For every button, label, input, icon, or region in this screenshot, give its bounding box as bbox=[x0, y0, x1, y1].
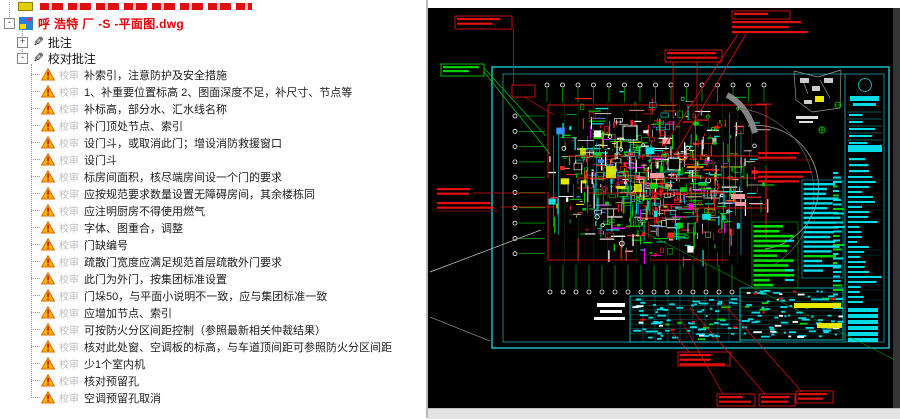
review-item-text: 设门斗，或取消此门；增设消防救援窗口 bbox=[84, 135, 282, 151]
review-item-list: 校审 补索引，注意防护及安全措施 校审 1、补重要位置标高 2、图面深度不足，补… bbox=[0, 66, 392, 406]
tree-connector bbox=[31, 193, 40, 194]
review-item-row[interactable]: 校审 少1个室内机 bbox=[0, 355, 392, 372]
warning-icon bbox=[41, 221, 55, 234]
tree-connector bbox=[31, 108, 40, 109]
review-item-text: 门垛50，与平面小说明不一致，应与集团标准一致 bbox=[84, 288, 327, 304]
review-item-prefix: 校审 bbox=[59, 237, 79, 252]
tree-connector bbox=[31, 261, 40, 262]
tree-connector bbox=[31, 380, 40, 381]
review-item-row[interactable]: 校审 可按防火分区间距控制（参照最新相关仲裁结果） bbox=[0, 321, 392, 338]
tree-connector bbox=[31, 176, 40, 177]
tree-connector bbox=[31, 244, 40, 245]
review-item-prefix: 校审 bbox=[59, 203, 79, 218]
review-item-row[interactable]: 校审 门垛50，与平面小说明不一致，应与集团标准一致 bbox=[0, 287, 392, 304]
review-item-prefix: 校审 bbox=[59, 305, 79, 320]
tree-connector bbox=[31, 397, 40, 398]
review-item-text: 疏散门宽度应满足规范首层疏散外门要求 bbox=[84, 254, 282, 270]
annotations-node-label: 批注 bbox=[48, 34, 72, 51]
warning-icon bbox=[41, 136, 55, 149]
tree-connector bbox=[31, 210, 40, 211]
review-item-text: 字体、图重合，调整 bbox=[84, 220, 183, 236]
review-item-prefix: 校审 bbox=[59, 152, 79, 167]
review-item-prefix: 校审 bbox=[59, 322, 79, 337]
warning-icon bbox=[41, 357, 55, 370]
review-item-text: 应按规范要求数量设置无障碍房间，其余楼栋同 bbox=[84, 186, 315, 202]
review-item-row[interactable]: 校审 核对此处窗、空调板的标高，与车道顶间距可参照防火分区间距 bbox=[0, 338, 392, 355]
warning-icon bbox=[41, 102, 55, 115]
warning-icon bbox=[41, 323, 55, 336]
review-item-row[interactable]: 校审 标房间面积，核尽端房间设一个门的要求 bbox=[0, 168, 392, 185]
review-annotations-node[interactable]: - ✎ 校对批注 bbox=[17, 50, 96, 66]
review-item-row[interactable]: 校审 空调预留孔取消 bbox=[0, 389, 392, 406]
review-item-text: 标房间面积，核尽端房间设一个门的要求 bbox=[84, 169, 282, 185]
review-item-text: 可按防火分区间距控制（参照最新相关仲裁结果） bbox=[84, 322, 326, 338]
review-item-row[interactable]: 校审 门缺编号 bbox=[0, 236, 392, 253]
tree-connector bbox=[31, 227, 40, 228]
dwg-file-icon bbox=[19, 17, 33, 30]
review-item-text: 补门顶处节点、索引 bbox=[84, 118, 183, 134]
collapse-toggle[interactable]: - bbox=[17, 53, 28, 64]
review-item-row[interactable]: 校审 设门斗，或取消此门；增设消防救援窗口 bbox=[0, 134, 392, 151]
review-item-row[interactable]: 校审 此门为外门，按集团标准设置 bbox=[0, 270, 392, 287]
pencil-icon: ✎ bbox=[33, 50, 44, 66]
review-item-prefix: 校审 bbox=[59, 135, 79, 150]
file-icon bbox=[18, 2, 33, 11]
review-item-row[interactable]: 校审 1、补重要位置标高 2、图面深度不足，补尺寸、节点等 bbox=[0, 83, 392, 100]
tree-connector bbox=[31, 74, 40, 75]
review-item-row[interactable]: 校审 设门斗 bbox=[0, 151, 392, 168]
review-item-row[interactable]: 校审 字体、图重合，调整 bbox=[0, 219, 392, 236]
annotation-tree-panel: - 呼 浩特 厂 -S -平面图.dwg + ✎ 批注 - ✎ 校对批注 校审 … bbox=[0, 0, 426, 418]
review-item-prefix: 校审 bbox=[59, 288, 79, 303]
review-item-text: 门缺编号 bbox=[84, 237, 128, 253]
warning-icon bbox=[41, 391, 55, 404]
tree-connector bbox=[31, 346, 40, 347]
review-item-row[interactable]: 校审 应注明厨房不得使用燃气 bbox=[0, 202, 392, 219]
review-item-text: 核对预留孔 bbox=[84, 373, 139, 389]
review-item-prefix: 校审 bbox=[59, 339, 79, 354]
review-item-prefix: 校审 bbox=[59, 271, 79, 286]
warning-icon bbox=[41, 68, 55, 81]
tree-connector bbox=[31, 91, 40, 92]
warning-icon bbox=[41, 187, 55, 200]
review-item-prefix: 校审 bbox=[59, 67, 79, 82]
warning-icon bbox=[41, 119, 55, 132]
annotations-node[interactable]: + ✎ 批注 bbox=[17, 34, 72, 50]
review-item-row[interactable]: 校审 疏散门宽度应满足规范首层疏散外门要求 bbox=[0, 253, 392, 270]
tree-connector bbox=[31, 329, 40, 330]
collapse-toggle[interactable]: - bbox=[4, 18, 15, 29]
review-node-label: 校对批注 bbox=[48, 50, 96, 67]
warning-icon bbox=[41, 153, 55, 166]
review-item-text: 设门斗 bbox=[84, 152, 117, 168]
review-item-prefix: 校审 bbox=[59, 186, 79, 201]
review-item-prefix: 校审 bbox=[59, 390, 79, 405]
warning-icon bbox=[41, 340, 55, 353]
tree-connector bbox=[31, 295, 40, 296]
review-item-row[interactable]: 校审 补标高，部分水、汇水线名称 bbox=[0, 100, 392, 117]
review-item-text: 补标高，部分水、汇水线名称 bbox=[84, 101, 227, 117]
review-item-prefix: 校审 bbox=[59, 118, 79, 133]
tree-connector bbox=[31, 142, 40, 143]
drawing-file-name: 呼 浩特 厂 -S -平面图.dwg bbox=[38, 15, 184, 32]
review-item-row[interactable]: 校审 核对预留孔 bbox=[0, 372, 392, 389]
review-item-text: 核对此处窗、空调板的标高，与车道顶间距可参照防火分区间距 bbox=[84, 339, 392, 355]
window-bottom-edge bbox=[428, 408, 900, 419]
warning-icon bbox=[41, 374, 55, 387]
review-item-text: 应增加节点、索引 bbox=[84, 305, 172, 321]
drawing-file-row[interactable]: - 呼 浩特 厂 -S -平面图.dwg bbox=[4, 15, 184, 32]
review-item-text: 空调预留孔取消 bbox=[84, 390, 161, 406]
review-item-text: 少1个室内机 bbox=[84, 356, 145, 372]
review-item-text: 应注明厨房不得使用燃气 bbox=[84, 203, 205, 219]
review-item-text: 此门为外门，按集团标准设置 bbox=[84, 271, 227, 287]
expand-toggle[interactable]: + bbox=[17, 37, 28, 48]
review-item-prefix: 校审 bbox=[59, 373, 79, 388]
warning-icon bbox=[41, 170, 55, 183]
cad-canvas[interactable] bbox=[428, 8, 900, 418]
warning-icon bbox=[41, 289, 55, 302]
review-item-text: 补索引，注意防护及安全措施 bbox=[84, 67, 227, 83]
pencil-icon: ✎ bbox=[33, 34, 44, 50]
warning-icon bbox=[41, 204, 55, 217]
tree-connector bbox=[31, 125, 40, 126]
tree-connector bbox=[31, 278, 40, 279]
review-item-prefix: 校审 bbox=[59, 101, 79, 116]
cad-viewport[interactable] bbox=[428, 8, 900, 418]
review-item-prefix: 校审 bbox=[59, 220, 79, 235]
truncated-file-row[interactable] bbox=[0, 1, 252, 11]
review-item-row[interactable]: 校审 应按规范要求数量设置无障碍房间，其余楼栋同 bbox=[0, 185, 392, 202]
warning-icon bbox=[41, 272, 55, 285]
review-item-prefix: 校审 bbox=[59, 356, 79, 371]
review-item-row[interactable]: 校审 应增加节点、索引 bbox=[0, 304, 392, 321]
tree-connector bbox=[31, 363, 40, 364]
tree-connector bbox=[31, 312, 40, 313]
tree-connector bbox=[31, 159, 40, 160]
warning-icon bbox=[41, 85, 55, 98]
review-item-row[interactable]: 校审 补门顶处节点、索引 bbox=[0, 117, 392, 134]
review-item-prefix: 校审 bbox=[59, 84, 79, 99]
review-item-prefix: 校审 bbox=[59, 169, 79, 184]
review-item-text: 1、补重要位置标高 2、图面深度不足，补尺寸、节点等 bbox=[84, 84, 352, 100]
truncated-filename-text bbox=[40, 3, 252, 10]
review-item-prefix: 校审 bbox=[59, 254, 79, 269]
warning-icon bbox=[41, 306, 55, 319]
warning-icon bbox=[41, 255, 55, 268]
review-item-row[interactable]: 校审 补索引，注意防护及安全措施 bbox=[0, 66, 392, 83]
warning-icon bbox=[41, 238, 55, 251]
